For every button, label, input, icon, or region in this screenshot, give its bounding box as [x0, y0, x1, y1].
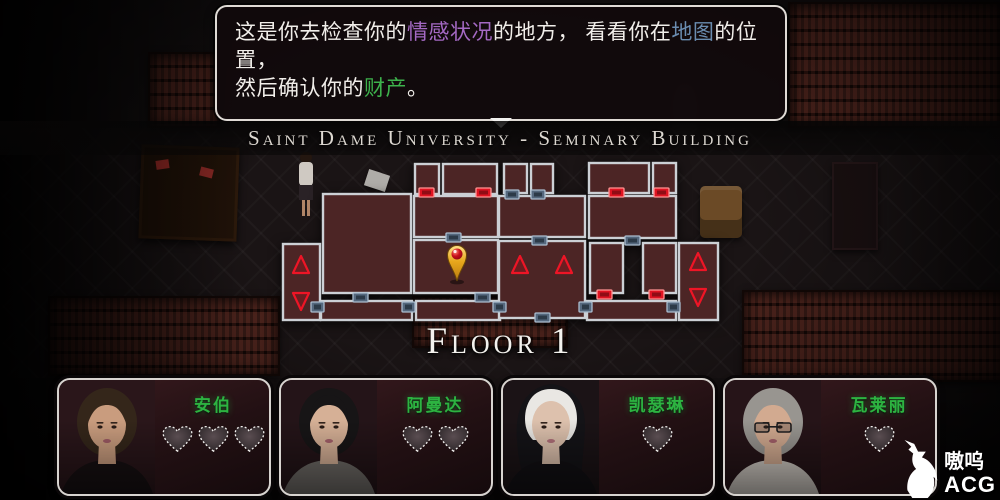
watermark-text: 嗷呜 ACG	[944, 452, 996, 498]
door-marker-inner	[405, 305, 412, 310]
door-marker-inner	[496, 305, 503, 310]
affection-hearts	[377, 425, 493, 453]
heart-empty-icon	[402, 425, 433, 453]
heart-empty-icon	[234, 425, 265, 453]
door-marker-inner	[670, 305, 677, 310]
tooltip-segment: 然后确认你的	[235, 77, 364, 100]
map-room[interactable]	[499, 196, 585, 237]
tooltip-text: 这是你去检查你的情感状况的地方， 看看你在地图的位置，然后确认你的财产。	[217, 7, 785, 115]
character-portrait	[725, 380, 821, 494]
door-marker-inner	[508, 193, 516, 197]
heart-empty-icon	[162, 425, 193, 453]
heart-empty-icon	[438, 425, 469, 453]
card-info: 凯瑟琳	[599, 380, 715, 494]
cabinet	[832, 162, 878, 250]
character-name: 阿曼达	[377, 391, 493, 416]
tooltip-segment: 财产	[364, 77, 407, 100]
door-marker-inner	[534, 193, 542, 197]
affection-hearts	[155, 425, 271, 453]
character-portrait	[281, 380, 377, 494]
door-marker-inner	[538, 316, 547, 320]
map-room[interactable]	[504, 164, 527, 193]
heart-empty-icon	[198, 425, 229, 453]
door-marker-inner	[582, 305, 589, 310]
map-room[interactable]	[587, 301, 676, 320]
heart-empty-icon	[864, 425, 895, 453]
card-info: 安伯	[155, 380, 271, 494]
watermark-cn: 嗷呜	[944, 452, 996, 472]
door-marker-inner	[449, 236, 458, 240]
map-room[interactable]	[416, 301, 500, 320]
character-name: 凯瑟琳	[599, 391, 715, 416]
character-portrait	[59, 380, 155, 494]
locked-door-marker-inner	[612, 191, 621, 195]
character-portrait	[503, 380, 599, 494]
map-room[interactable]	[323, 194, 411, 293]
character-card-row: 安伯 阿曼达 凯瑟琳 瓦莱丽	[57, 378, 937, 496]
wolf-icon	[897, 440, 943, 498]
character-card-katherine[interactable]: 凯瑟琳	[501, 378, 715, 496]
tooltip-box: 这是你去检查你的情感状况的地方， 看看你在地图的位置，然后确认你的财产。	[215, 5, 787, 121]
door-marker-inner	[478, 296, 487, 300]
heart-empty-icon	[642, 425, 673, 453]
red-envelope	[155, 159, 169, 170]
door-marker-inner	[314, 305, 321, 310]
building-title: Saint Dame University - Seminary Buildin…	[0, 121, 1000, 155]
floor-map[interactable]	[280, 155, 720, 325]
map-room[interactable]	[321, 301, 412, 320]
map-room[interactable]	[590, 243, 623, 293]
tooltip-segment: 这是你去检查你的	[235, 21, 407, 44]
floor-label: Floor 1	[0, 320, 1000, 363]
tooltip-segment: 。	[407, 77, 429, 100]
map-room[interactable]	[531, 164, 553, 193]
affection-hearts	[599, 425, 715, 453]
bookshelf	[148, 52, 222, 128]
card-info: 阿曼达	[377, 380, 493, 494]
character-name: 瓦莱丽	[821, 391, 937, 416]
tooltip-segment: 情感状况	[407, 21, 493, 44]
tooltip-segment: 的地方， 看看你在	[493, 21, 671, 44]
character-card-amanda[interactable]: 阿曼达	[279, 378, 493, 496]
door-marker-inner	[356, 296, 365, 300]
bookshelf	[788, 2, 1000, 128]
locked-door-marker-inner	[652, 293, 661, 297]
door-marker-inner	[535, 239, 544, 243]
tooltip-segment: 地图	[671, 21, 714, 44]
door-marker-inner	[628, 239, 637, 243]
character-name: 安伯	[155, 391, 271, 416]
map-room[interactable]	[589, 196, 676, 238]
locked-door-marker-inner	[657, 191, 666, 195]
watermark: 嗷呜 ACG	[897, 440, 996, 498]
watermark-en: ACG	[944, 474, 996, 496]
character-card-amber[interactable]: 安伯	[57, 378, 271, 496]
game-screen: 这是你去检查你的情感状况的地方， 看看你在地图的位置，然后确认你的财产。 Sai…	[0, 0, 1000, 500]
map-room[interactable]	[414, 196, 498, 237]
wooden-table	[138, 144, 239, 241]
locked-door-marker-inner	[422, 191, 431, 195]
locked-door-marker-inner	[479, 191, 488, 195]
building-title-band: Saint Dame University - Seminary Buildin…	[0, 121, 1000, 155]
locked-door-marker-inner	[600, 293, 609, 297]
map-room[interactable]	[499, 241, 585, 318]
map-room[interactable]	[643, 243, 676, 293]
